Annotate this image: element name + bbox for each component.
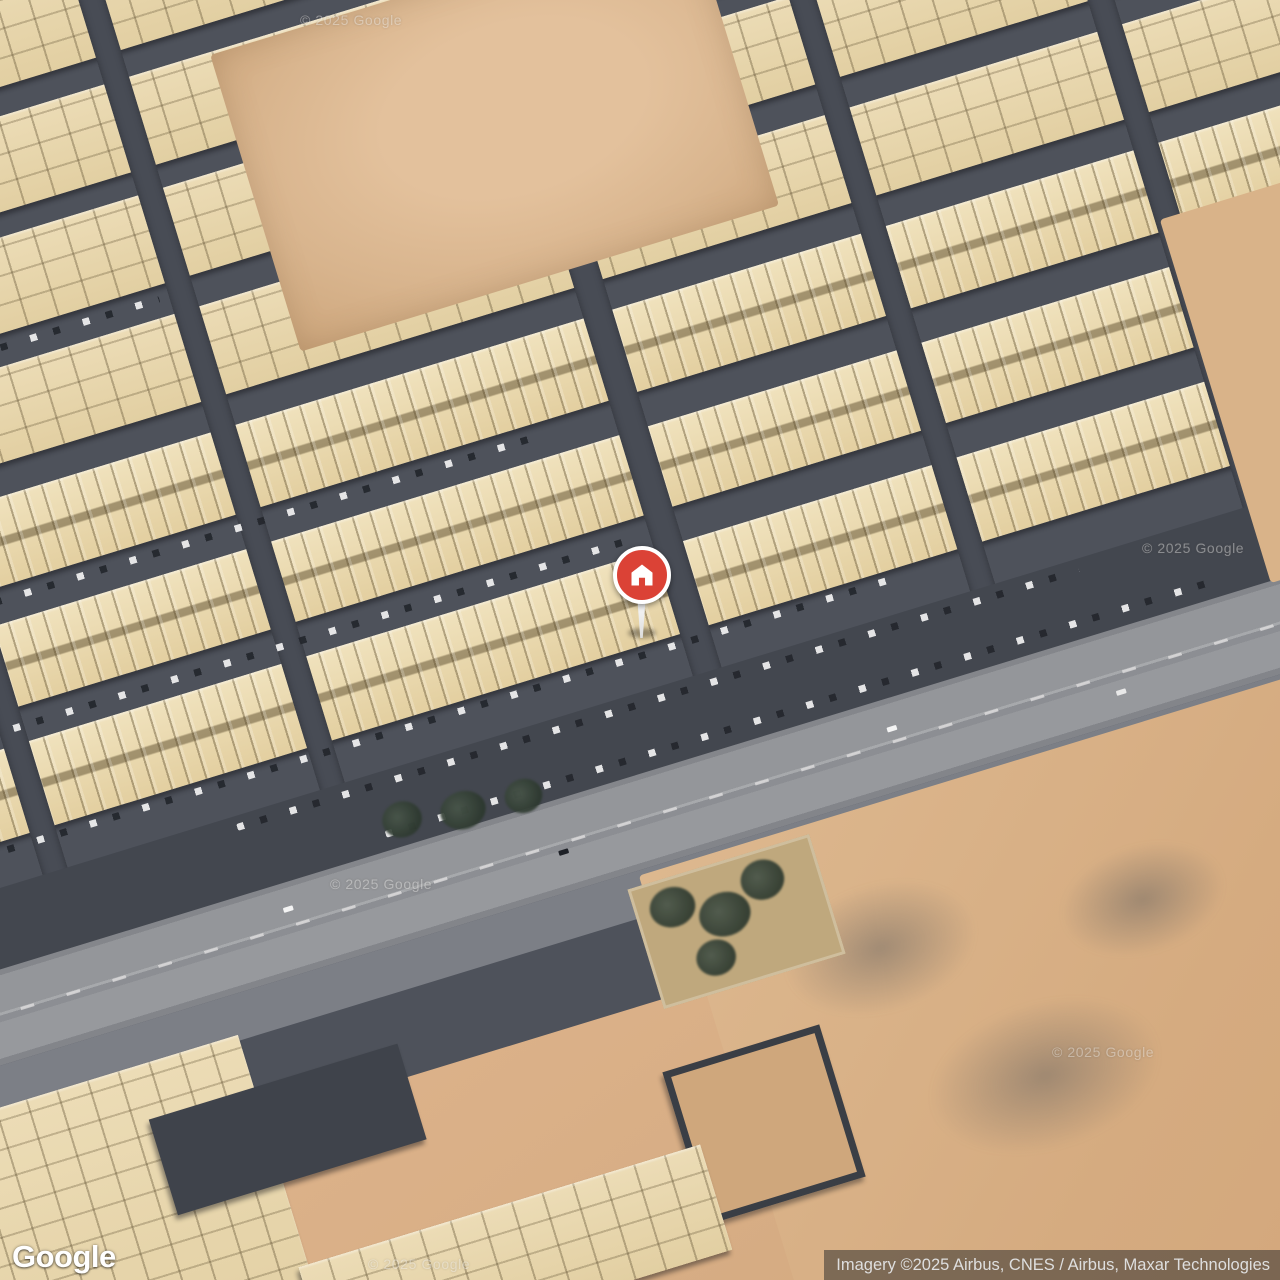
google-watermark: © 2025 Google	[1142, 540, 1244, 556]
marker-head[interactable]	[613, 546, 671, 604]
home-icon	[628, 561, 656, 589]
google-logo[interactable]: Google	[12, 1239, 116, 1275]
satellite-imagery	[0, 0, 1280, 1280]
google-watermark: © 2025 Google	[1052, 1044, 1154, 1060]
google-watermark: © 2025 Google	[300, 12, 402, 28]
attribution-bar: Imagery ©2025 Airbus, CNES / Airbus, Max…	[824, 1250, 1280, 1280]
google-watermark: © 2025 Google	[368, 1256, 470, 1272]
google-watermark: © 2025 Google	[330, 876, 432, 892]
satellite-map[interactable]: © 2025 Google © 2025 Google © 2025 Googl…	[0, 0, 1280, 1280]
